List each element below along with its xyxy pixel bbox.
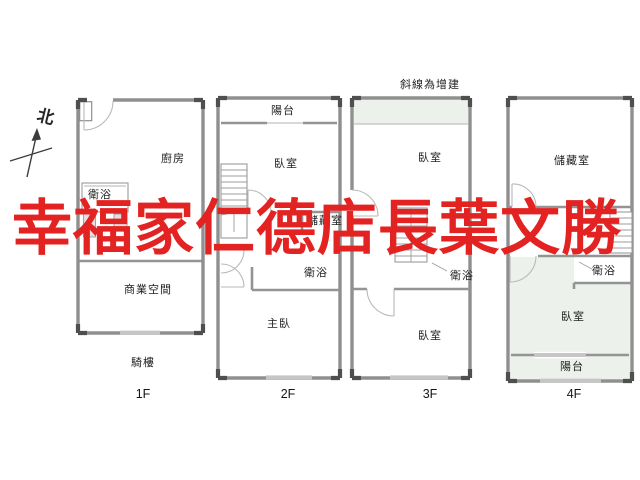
floor-label-1f: 1F — [136, 387, 151, 401]
room-label-bathroom-4f: 衛浴 — [592, 262, 616, 278]
room-label-bedroom-2f: 臥室 — [274, 155, 298, 171]
room-label-bedroom-3f-lower: 臥室 — [418, 327, 442, 343]
agent-watermark: 幸福家仁德店長葉文勝 — [12, 197, 622, 262]
room-label-arcade: 騎樓 — [131, 354, 155, 370]
floor-label-4f: 4F — [567, 387, 582, 401]
room-label-bathroom-3f: 衛浴 — [450, 267, 474, 283]
floor-label-2f: 2F — [281, 387, 296, 401]
room-label-bedroom-3f-upper: 臥室 — [418, 149, 442, 165]
extension-note: 斜線為增建 — [400, 76, 460, 92]
room-label-commercial-space: 商業空間 — [124, 281, 172, 297]
room-label-bedroom-4f: 臥室 — [561, 308, 585, 324]
room-label-balcony-4f: 陽台 — [560, 358, 584, 374]
floorplan-page: 北 斜線為增建 廚房 衛浴 商業空間 騎樓 1F 陽台 臥室 儲藏室 衛浴 主臥… — [0, 0, 640, 480]
floor-label-3f: 3F — [423, 387, 438, 401]
room-label-kitchen: 廚房 — [161, 150, 185, 166]
room-label-master-bedroom: 主臥 — [267, 315, 291, 331]
room-label-bathroom-2f: 衛浴 — [304, 264, 328, 280]
room-label-balcony-2f: 陽台 — [271, 102, 295, 118]
north-arrow-icon — [10, 128, 52, 177]
room-label-storage-4f: 儲藏室 — [554, 152, 590, 168]
